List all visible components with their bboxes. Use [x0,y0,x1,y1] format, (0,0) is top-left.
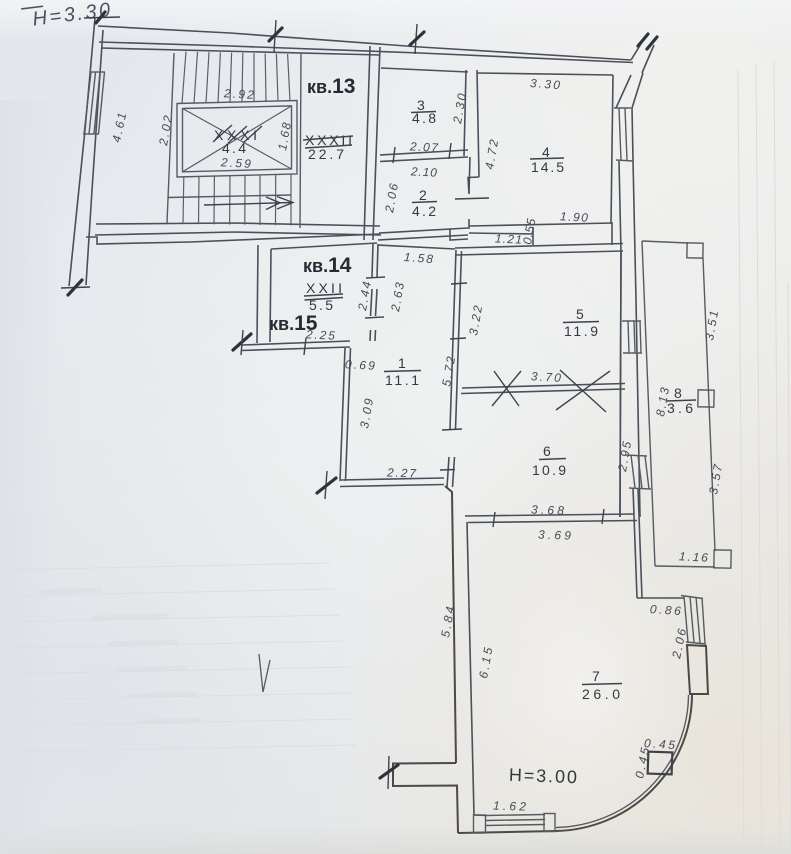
svg-text:8: 8 [674,385,682,401]
svg-text:0.86: 0.86 [649,602,681,618]
svg-text:14.5: 14.5 [531,159,564,175]
svg-text:1.58: 1.58 [403,250,433,266]
svg-text:3.70: 3.70 [531,369,562,385]
svg-text:1.21: 1.21 [495,231,523,246]
svg-text:4: 4 [542,144,550,160]
svg-text:2: 2 [419,187,427,203]
svg-text:1.90: 1.90 [560,209,589,224]
svg-text:6: 6 [543,443,551,459]
svg-text:H=3.00: H=3.00 [509,765,578,787]
svg-text:2.10: 2.10 [410,164,438,179]
svg-text:4.4: 4.4 [222,140,246,156]
svg-text:2.25: 2.25 [305,327,336,343]
svg-text:3.6: 3.6 [667,400,693,416]
svg-text:2.92: 2.92 [223,86,255,102]
svg-text:кв.13: кв.13 [307,75,355,98]
svg-text:3.30: 3.30 [529,76,560,92]
svg-text:2.07: 2.07 [409,139,440,155]
svg-text:1.62: 1.62 [493,799,527,814]
svg-text:0.69: 0.69 [345,357,376,373]
svg-text:4.8: 4.8 [412,110,436,126]
svg-text:кв.14: кв.14 [303,254,352,277]
svg-text:5: 5 [576,306,584,322]
svg-text:10.9: 10.9 [532,462,566,478]
svg-text:4.2: 4.2 [412,203,436,219]
svg-text:2.27: 2.27 [386,465,418,480]
svg-text:5.5: 5.5 [309,297,333,313]
svg-text:1: 1 [398,355,406,371]
svg-text:3.69: 3.69 [538,528,572,543]
svg-text:3.68: 3.68 [531,503,565,518]
svg-text:1.16: 1.16 [679,549,709,565]
svg-text:22.7: 22.7 [308,146,344,162]
svg-text:2.59: 2.59 [220,155,252,171]
svg-text:11.1: 11.1 [385,372,419,388]
svg-text:7: 7 [592,668,600,684]
svg-text:26.0: 26.0 [582,686,620,702]
svg-text:11.9: 11.9 [564,323,598,339]
